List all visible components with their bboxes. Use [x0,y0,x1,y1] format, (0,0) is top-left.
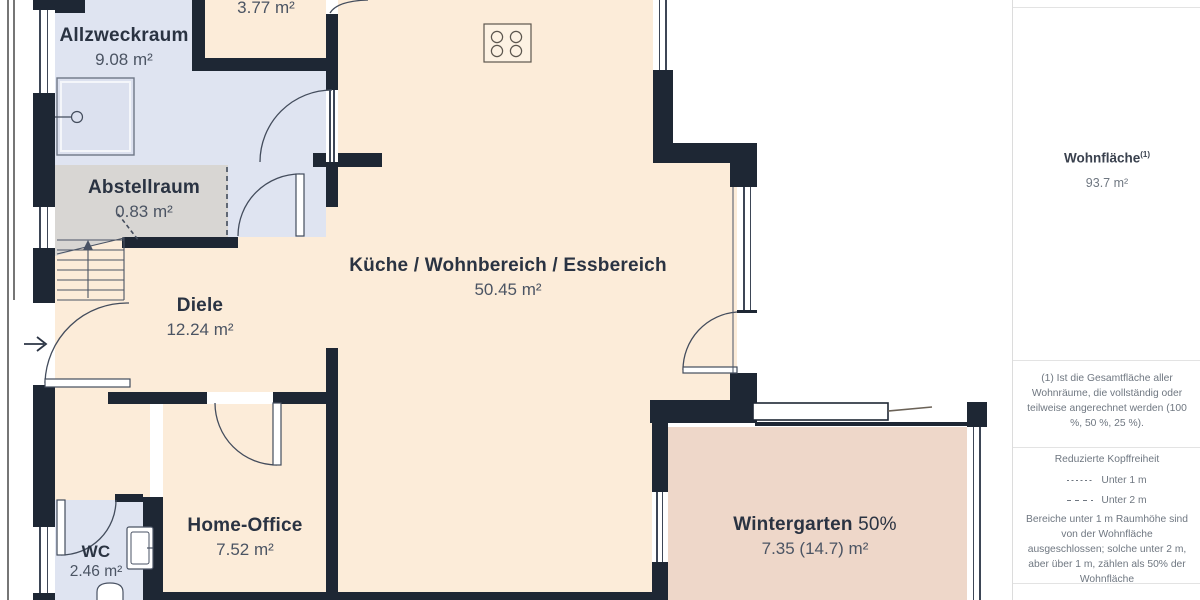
wall [326,162,338,207]
wall [192,58,338,71]
floor-plan: Allzweckraum 9.08 m² 3.77 m² Abstellraum… [0,0,1012,600]
room-name: Allzweckraum [59,25,188,47]
room-label-377: 3.77 m² [237,0,295,18]
head-height-note: Bereiche unter 1 m Raumhöhe sind von der… [1023,513,1191,588]
divider [1013,360,1200,361]
window [738,187,757,310]
room-area: 9.08 m² [59,50,188,70]
info-sidebar: Wohnfläche(1) 93.7 m² (1) Ist die Gesamt… [1012,0,1200,600]
wall [650,400,732,423]
wall [143,592,668,600]
room-label-allzweckraum: Allzweckraum 9.08 m² [59,25,188,70]
window [652,492,668,562]
room-name: Wintergarten 50% [733,514,897,536]
door-opening [326,0,338,14]
window [33,207,55,248]
wall [737,310,757,313]
room-label-diele: Diele 12.24 m² [166,295,233,340]
wall [33,93,55,207]
room-name: Diele [166,295,233,317]
room-area: 12.24 m² [166,320,233,340]
room-name: Abstellraum [88,177,200,199]
wall [730,163,757,187]
wall [33,385,55,527]
room-name: Home-Office [187,515,302,537]
wall [313,153,382,167]
wall [192,0,205,58]
wall [967,402,987,427]
wall [115,494,143,502]
room-area: 3.77 m² [237,0,295,18]
property-edge-line [8,0,14,600]
room-home-office [163,404,326,592]
window [653,0,673,70]
legend-title: Reduzierte Kopffreiheit [1023,453,1191,468]
room-percentage: 50% [858,514,897,535]
divider [1013,447,1200,448]
dashed-line-icon [1067,500,1093,502]
wall [652,423,668,492]
wall [730,373,757,423]
room-label-wintergarten: Wintergarten 50% 7.35 (14.7) m² [733,514,897,559]
footnote-text: (1) Ist die Gesamtfläche aller Wohnräume… [1023,372,1191,432]
room-name: Küche / Wohnbereich / Essbereich [349,255,667,277]
window [33,10,55,93]
wall [33,248,55,303]
wall [122,237,238,248]
room-area: 7.52 m² [187,540,302,560]
entry-opening [33,303,55,385]
fine-dashed-line-icon [1067,480,1093,482]
living-area-heading: Wohnfläche(1) [1064,150,1150,166]
living-area-value: 93.7 m² [1086,176,1128,190]
room-allzweckraum-ext [228,165,326,237]
room-corridor [55,392,150,500]
wall [326,14,338,90]
room-label-kueche: Küche / Wohnbereich / Essbereich 50.45 m… [349,255,667,300]
room-label-abstellraum: Abstellraum 0.83 m² [88,177,200,222]
wall [143,497,163,600]
room-area: 0.83 m² [88,202,200,222]
room-label-home-office: Home-Office 7.52 m² [187,515,302,560]
wall [326,348,338,592]
wall [33,593,55,600]
window [33,527,55,593]
wall [108,392,207,404]
room-area: 2.46 m² [70,563,123,581]
room-kueche-open [326,207,338,348]
wall [652,562,668,600]
legend-label: Unter 1 m [1101,475,1146,486]
room-area: 7.35 (14.7) m² [733,539,897,559]
footnote-marker: (1) [1140,150,1150,159]
divider [1013,583,1200,584]
floorplan-viewer: Allzweckraum 9.08 m² 3.77 m² Abstellraum… [0,0,1200,600]
divider [1013,7,1200,8]
legend-row-under-2m: Unter 2 m [1013,495,1200,506]
legend-label: Unter 2 m [1101,495,1146,506]
wall [755,422,967,426]
legend-row-under-1m: Unter 1 m [1013,475,1200,486]
sliding-door-icon [753,403,932,420]
room-label-wc: WC 2.46 m² [70,542,123,581]
room-name: WC [70,542,123,562]
window [967,427,987,600]
wall [653,143,757,163]
room-area: 50.45 m² [349,280,667,300]
door-leaf-in-wall [326,90,338,162]
